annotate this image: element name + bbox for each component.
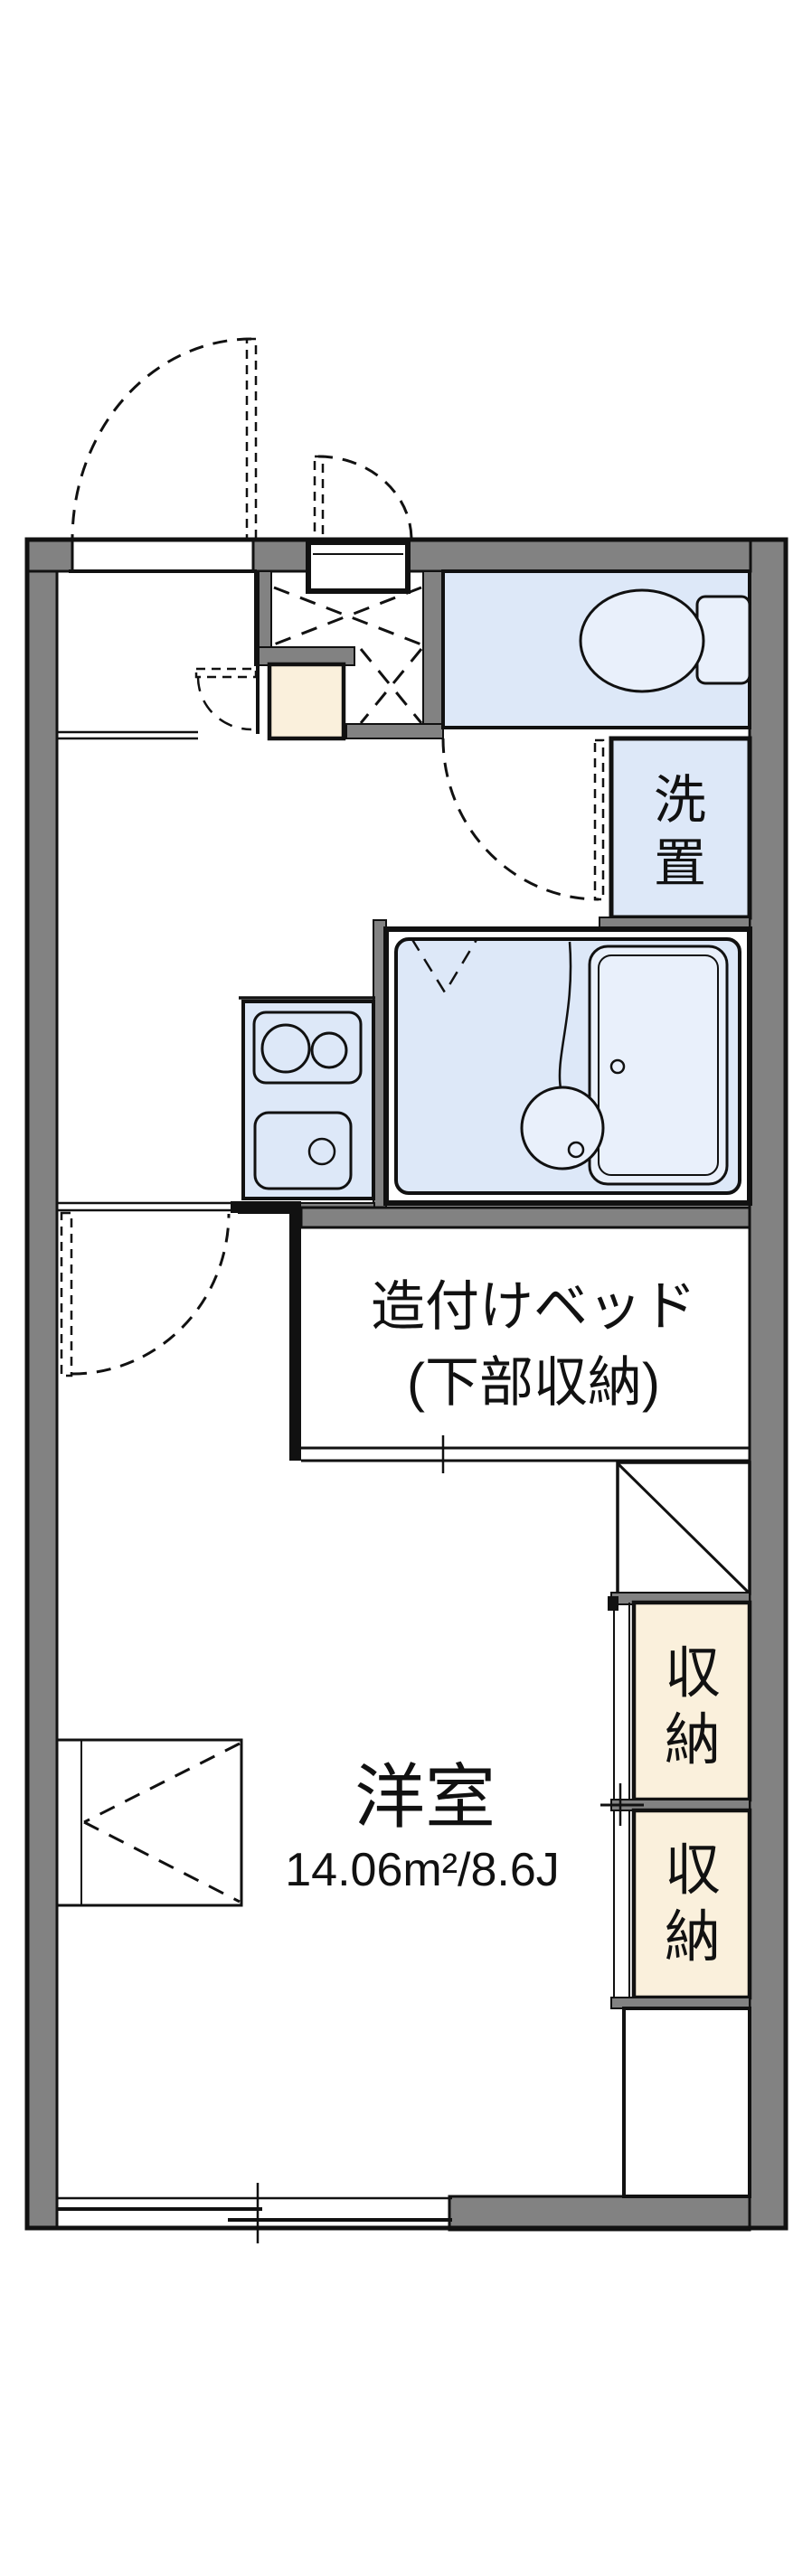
entrance-door-recess [308, 542, 408, 591]
wash-basin-circle [522, 1087, 603, 1169]
genkan-x-mark-line [274, 588, 421, 644]
closet-lower-label-char2: 納 [665, 1906, 721, 1969]
western-room: 洋室 14.06m²/8.6J [57, 1740, 560, 1905]
entrance-doors [72, 339, 411, 591]
genkan-x-mark-line [274, 588, 421, 644]
washer-space-label-char2: 置 [654, 834, 706, 893]
toilet-door-leaf [595, 740, 603, 899]
kitchen-unit [243, 1001, 373, 1199]
toilet-bowl [581, 590, 703, 691]
floor-plan-page: 洗 置 造付けベッド [0, 0, 812, 2576]
bottom-wall-segment [449, 2196, 750, 2230]
closet-upper-label-char2: 納 [665, 1709, 721, 1772]
room-door-leaf [196, 669, 256, 677]
western-room-label: 洋室 [354, 1757, 496, 1837]
genkan-area [255, 571, 443, 738]
bath-room [373, 920, 750, 1209]
top-left-room [57, 571, 258, 738]
left-outer-wall [27, 540, 57, 2228]
toilet-door-swing-arc [443, 738, 599, 899]
shoe-step-box [269, 664, 344, 738]
bed-top-wall [301, 1208, 750, 1227]
bottom-window [57, 2183, 452, 2243]
right-outer-wall [750, 540, 786, 2228]
closet-upper-label-char1: 収 [665, 1642, 721, 1705]
boundary-wall-piece [231, 1201, 301, 1213]
western-room-size-label: 14.06m²/8.6J [285, 1844, 560, 1896]
room-door-swing-arc [72, 1214, 229, 1374]
bathtub [590, 946, 727, 1184]
main-door-leaf [247, 339, 256, 540]
toilet-tank [697, 597, 750, 683]
genkan-wall-band [346, 724, 443, 738]
room-door-leaf [61, 1213, 71, 1376]
small-door-leaf [315, 456, 323, 540]
room-door-swing-arc [198, 677, 251, 729]
bed-label-line2: (下部収納) [407, 1352, 660, 1413]
open-storage-box [624, 2008, 750, 2196]
built-in-bed-area: 造付けベッド (下部収納) [289, 1208, 750, 1473]
top-wall-segment-b [407, 540, 751, 571]
bed-left-wall [289, 1213, 301, 1461]
washer-space-label-char1: 洗 [654, 771, 706, 830]
toilet-left-wall [423, 571, 443, 738]
main-door-swing-arc [72, 339, 251, 540]
closet-lower-label-char1: 収 [665, 1839, 721, 1902]
small-door-swing-arc [318, 456, 411, 540]
bed-label-line1: 造付けベッド [371, 1276, 696, 1337]
right-column: 収 納 収 納 [600, 1462, 750, 2196]
floor-plan-drawing: 洗 置 造付けベッド [0, 0, 812, 2576]
top-wall-corner-block [27, 540, 72, 571]
kitchen [239, 998, 375, 1199]
